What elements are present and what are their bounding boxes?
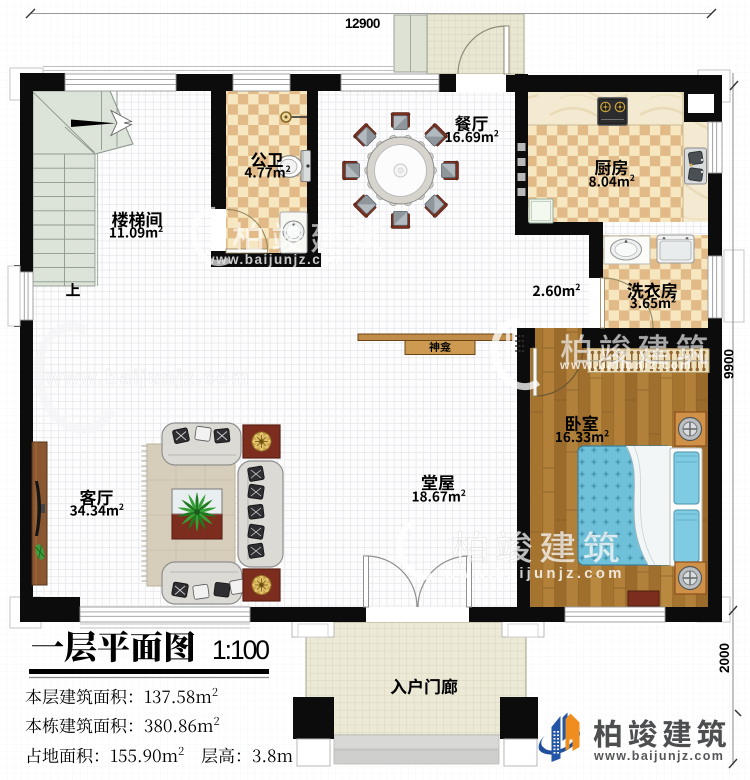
svg-text:2000: 2000	[717, 643, 732, 673]
svg-text:www.baijunjz.com: www.baijunjz.com	[559, 358, 692, 372]
svg-text:9900: 9900	[722, 349, 737, 379]
svg-text:www.baijunjz.com: www.baijunjz.com	[593, 749, 724, 763]
svg-text:www.baijunjz.com: www.baijunjz.com	[443, 565, 625, 582]
svg-text:www.baijunjz.com: www.baijunjz.com	[203, 252, 345, 267]
svg-text:www.baijunjz.com: www.baijunjz.com	[45, 367, 251, 389]
svg-text:12900: 12900	[345, 16, 381, 31]
svg-text:1:100: 1:100	[212, 635, 270, 665]
